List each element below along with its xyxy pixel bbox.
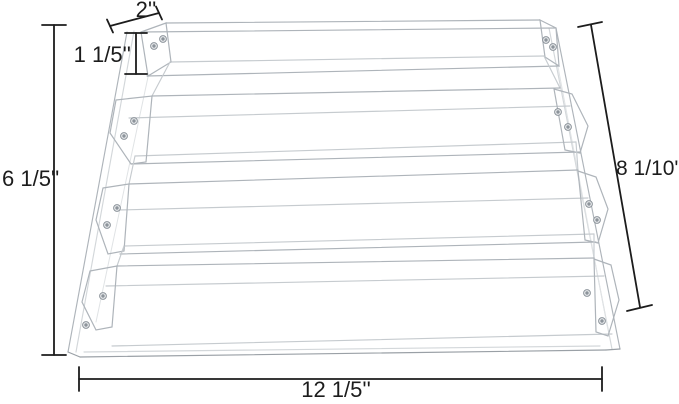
riser-diagram-canvas: 2'' 1 1/5'' 6 1/5'' 8 1/10'' 12 1/5'' [0, 0, 679, 404]
dim-overall-width-label: 12 1/5'' [301, 377, 371, 402]
dim-overall-height-label: 6 1/5'' [2, 166, 59, 191]
screw [121, 133, 128, 140]
screw [100, 293, 107, 300]
screw [586, 201, 593, 208]
screw [565, 124, 572, 131]
dim-lip-height-label: 1 1/5'' [74, 42, 131, 67]
dim-top-depth-label: 2'' [136, 0, 157, 22]
screw [550, 44, 557, 51]
screw [114, 205, 121, 212]
screw [584, 290, 591, 297]
tier-1 [141, 20, 560, 96]
product-dimension-diagram: 2'' 1 1/5'' 6 1/5'' 8 1/10'' 12 1/5'' [0, 0, 679, 404]
riser-outline [68, 28, 620, 357]
screw [160, 36, 167, 43]
acrylic-riser [68, 20, 620, 357]
screw [594, 217, 601, 224]
screw [83, 322, 90, 329]
dim-slant-depth-label: 8 1/10'' [616, 157, 679, 180]
screw [543, 37, 550, 44]
tier-2 [110, 88, 588, 184]
tier-4 [82, 258, 619, 346]
tier-3 [96, 170, 608, 266]
screw [555, 109, 562, 116]
screw [599, 318, 606, 325]
screw [104, 222, 111, 229]
screw [131, 118, 138, 125]
screw [151, 43, 158, 50]
